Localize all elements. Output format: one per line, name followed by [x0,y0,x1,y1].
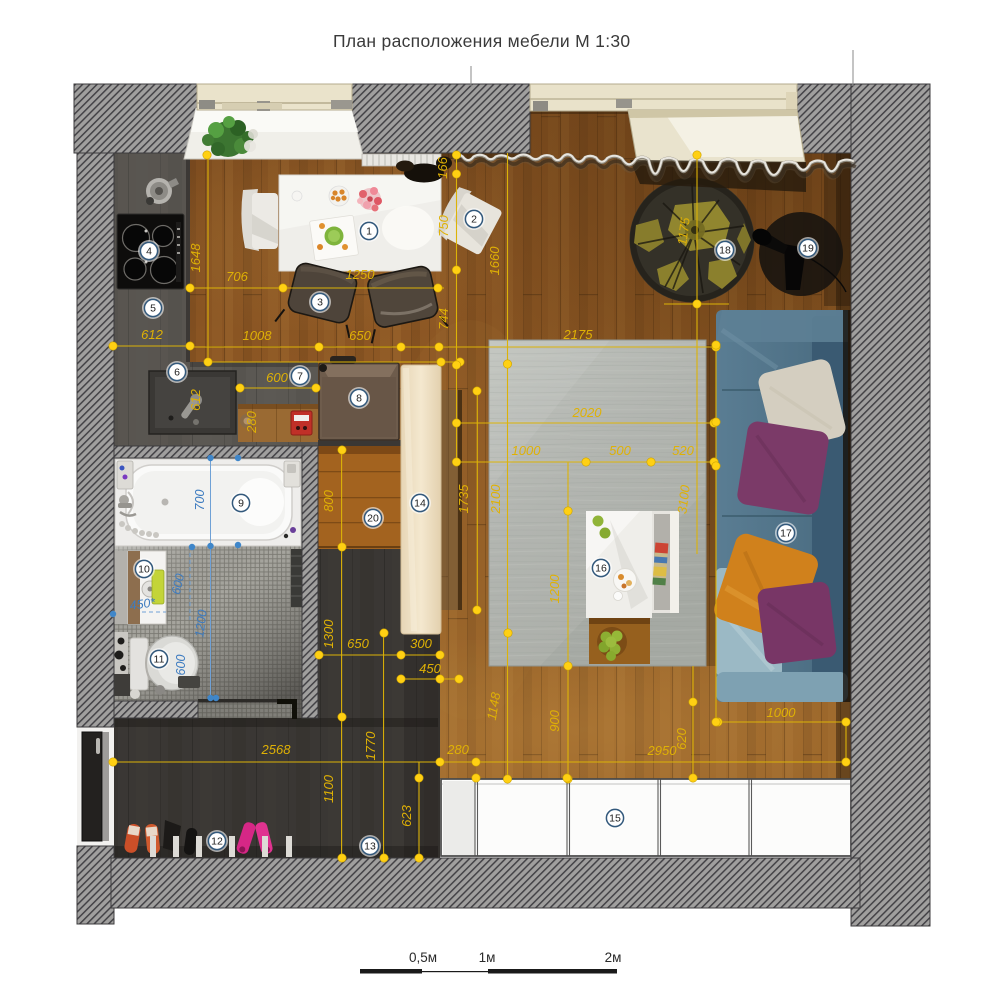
svg-text:1770: 1770 [363,731,378,761]
svg-text:520: 520 [672,443,694,458]
svg-text:1000: 1000 [767,705,797,720]
svg-text:5: 5 [150,303,156,315]
svg-text:13: 13 [364,841,376,853]
svg-text:9: 9 [238,498,244,510]
svg-text:1250: 1250 [346,267,376,282]
svg-text:1008: 1008 [243,328,273,343]
svg-text:700: 700 [193,490,207,511]
svg-text:1: 1 [366,226,372,238]
svg-text:2175: 2175 [563,327,594,342]
svg-text:623: 623 [399,804,414,826]
svg-text:1648: 1648 [188,243,203,273]
svg-text:650: 650 [349,328,371,343]
svg-text:2950: 2950 [647,743,678,758]
svg-text:План расположения мебели М 1:: План расположения мебели М 1:30 [333,31,630,51]
svg-text:11: 11 [154,654,165,666]
svg-text:750: 750 [436,214,451,236]
svg-text:300: 300 [410,636,432,651]
svg-text:20: 20 [367,513,379,525]
svg-text:600: 600 [174,655,188,676]
svg-text:166: 166 [435,156,450,178]
svg-text:706: 706 [226,269,248,284]
svg-text:600: 600 [266,370,288,385]
svg-text:650: 650 [347,636,369,651]
svg-text:900: 900 [547,709,562,731]
svg-text:19: 19 [802,243,814,255]
svg-text:450: 450 [419,661,441,676]
svg-text:4: 4 [146,246,152,258]
svg-text:612: 612 [188,388,203,410]
svg-text:16: 16 [595,563,607,575]
svg-text:0,5м: 0,5м [409,950,437,965]
svg-text:800: 800 [321,489,336,511]
svg-text:1660: 1660 [487,246,502,276]
svg-text:2020: 2020 [572,405,603,420]
svg-text:2568: 2568 [261,742,292,757]
svg-text:17: 17 [780,528,792,540]
svg-text:1200: 1200 [547,574,562,604]
svg-text:6: 6 [174,367,180,379]
svg-text:1735: 1735 [456,484,471,514]
svg-text:8: 8 [356,393,362,405]
svg-text:612: 612 [141,327,163,342]
svg-text:15: 15 [609,813,621,825]
svg-text:1100: 1100 [321,774,336,803]
svg-text:2м: 2м [605,950,622,965]
svg-text:1м: 1м [479,950,496,965]
svg-text:10: 10 [138,564,150,576]
svg-text:1000: 1000 [512,443,542,458]
svg-text:280: 280 [244,410,259,433]
svg-text:3: 3 [317,297,323,309]
svg-text:1300: 1300 [321,619,336,649]
svg-text:2: 2 [471,214,477,226]
svg-text:18: 18 [719,245,731,257]
svg-text:14: 14 [414,498,426,510]
svg-text:7: 7 [297,371,303,383]
svg-text:744: 744 [436,308,451,330]
svg-text:12: 12 [211,836,223,848]
svg-text:500: 500 [609,443,631,458]
svg-text:280: 280 [446,742,469,757]
svg-text:2100: 2100 [488,484,503,515]
